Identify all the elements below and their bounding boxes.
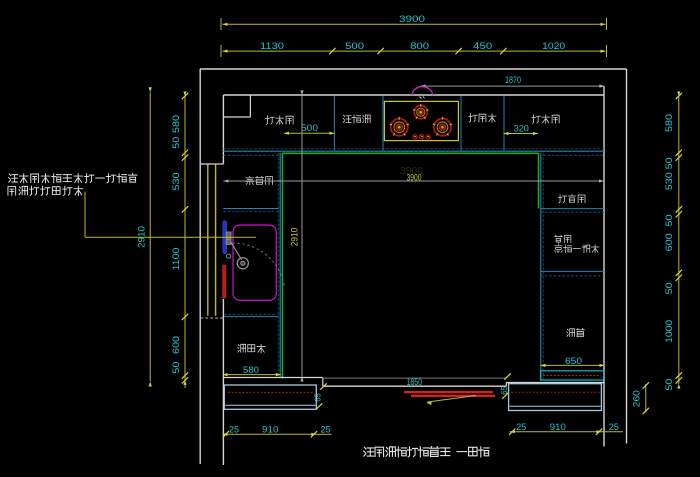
svg-text:50: 50: [664, 157, 675, 169]
svg-text:1020: 1020: [542, 41, 565, 51]
svg-text:260: 260: [631, 390, 641, 407]
svg-text:1850: 1850: [407, 377, 422, 387]
svg-text:800: 800: [410, 41, 429, 51]
svg-text:320: 320: [514, 123, 529, 133]
svg-text:910: 910: [262, 425, 279, 435]
svg-text:50: 50: [664, 282, 675, 294]
svg-text:1870: 1870: [505, 75, 521, 85]
svg-text:3900: 3900: [407, 172, 422, 182]
svg-text:65: 65: [313, 393, 323, 402]
svg-text:580: 580: [243, 365, 259, 375]
svg-text:65: 65: [499, 386, 509, 395]
svg-text:50: 50: [664, 379, 675, 391]
svg-text:1100: 1100: [171, 248, 182, 271]
svg-text:50: 50: [664, 215, 675, 227]
svg-text:2910: 2910: [289, 228, 299, 247]
svg-text:530: 530: [171, 173, 182, 191]
svg-text:580: 580: [171, 115, 182, 133]
svg-text:25: 25: [516, 422, 526, 432]
svg-text:450: 450: [473, 41, 492, 51]
svg-text:25: 25: [609, 422, 619, 432]
svg-text:580: 580: [664, 114, 675, 132]
svg-text:650: 650: [565, 356, 582, 366]
svg-text:25: 25: [229, 425, 239, 435]
svg-text:50: 50: [171, 362, 182, 374]
svg-text:500: 500: [345, 41, 364, 51]
svg-text:50: 50: [171, 137, 182, 149]
svg-text:25: 25: [321, 425, 331, 435]
svg-text:1000: 1000: [664, 320, 675, 343]
svg-text:600: 600: [171, 336, 182, 354]
svg-text:530: 530: [664, 172, 675, 190]
svg-text:3900: 3900: [399, 14, 425, 25]
svg-text:600: 600: [664, 233, 675, 251]
svg-text:1130: 1130: [260, 41, 284, 51]
svg-text:910: 910: [550, 422, 566, 432]
svg-text:500: 500: [301, 123, 318, 133]
